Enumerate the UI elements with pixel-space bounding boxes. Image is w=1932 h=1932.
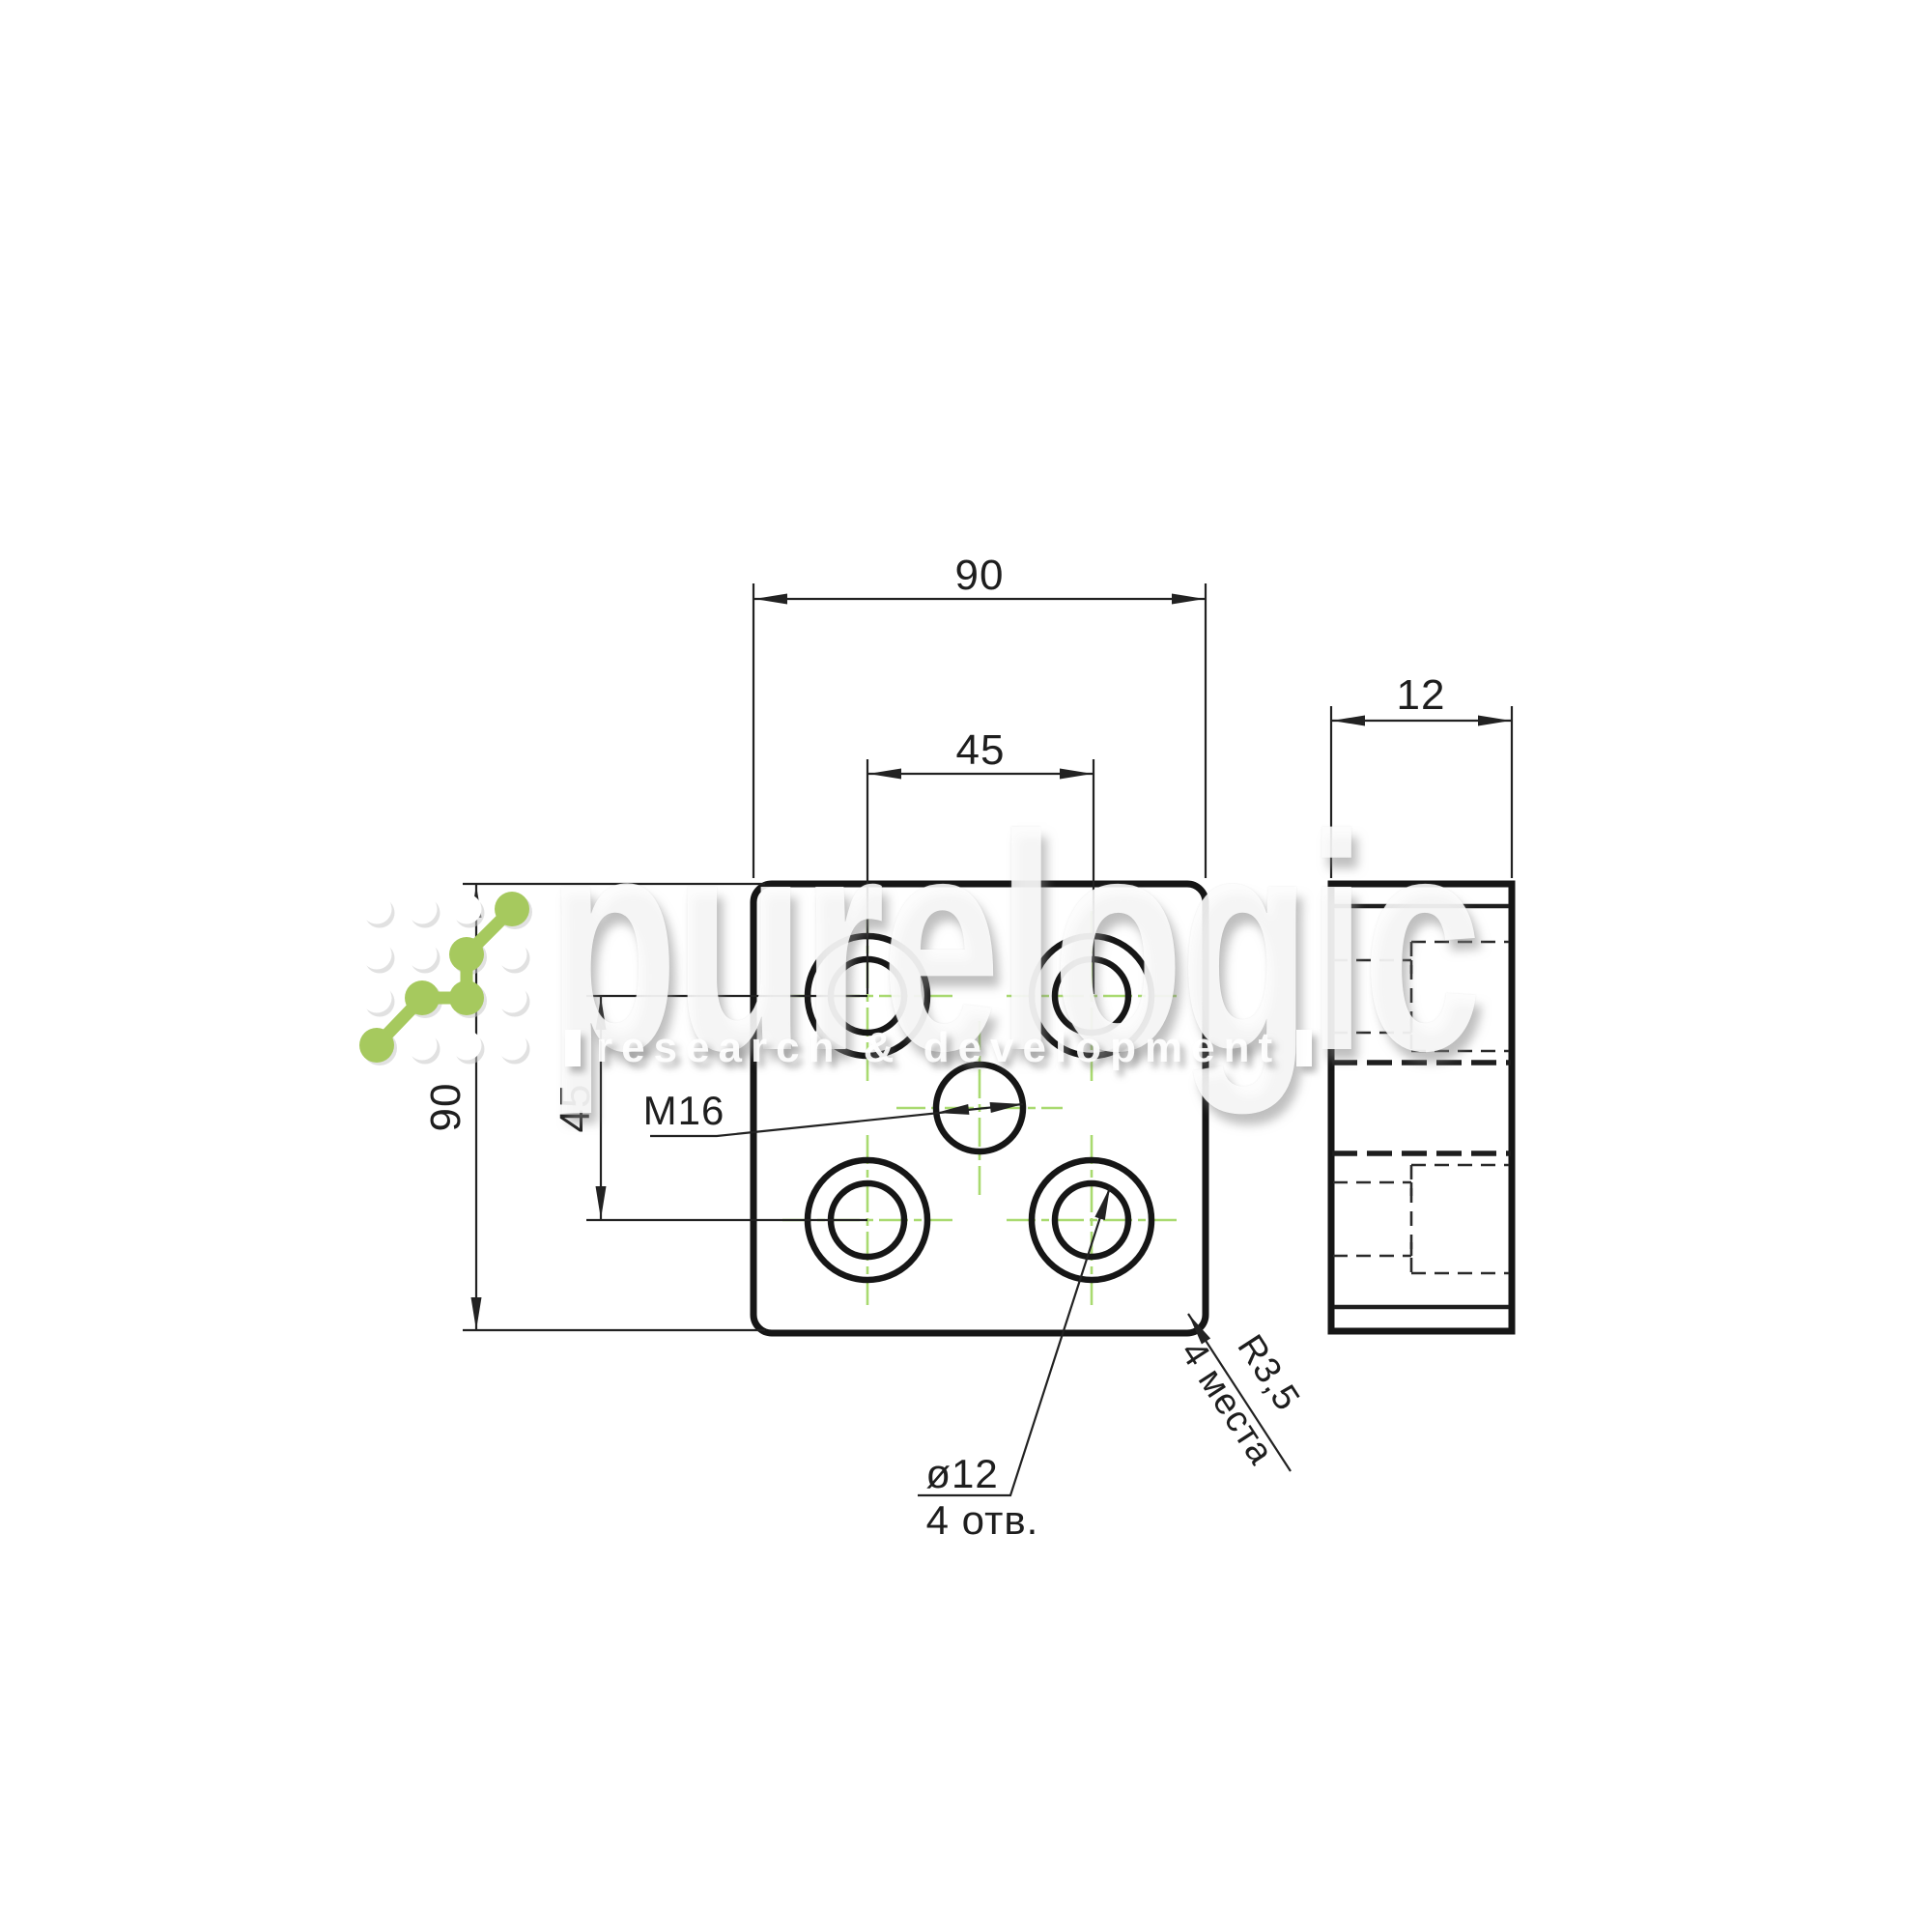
arrow-up-icon [471, 885, 482, 918]
arrow-right-icon [1478, 716, 1511, 726]
dim-width-value: 90 [955, 552, 1005, 599]
dim-height-value: 90 [422, 1083, 469, 1132]
label-holes-diameter: ø12 [925, 1451, 998, 1496]
dim-hole-spacing-h-value: 45 [956, 726, 1006, 774]
label-center-hole: M16 [643, 1088, 725, 1133]
arrow-right-icon [1060, 769, 1093, 780]
side-view: 12 [1331, 671, 1512, 1331]
dim-hole-spacing-v-value: 45 [552, 1084, 599, 1133]
arrow-up-icon [596, 997, 607, 1030]
dim-thickness-12 [1331, 706, 1512, 878]
front-view: 90 45 90 [422, 552, 1308, 1543]
arrow-right-icon [1172, 594, 1205, 605]
technical-drawing-canvas: 90 45 90 [0, 0, 1932, 1932]
drawing-page: 90 45 90 [0, 0, 1932, 1932]
arrow-left-icon [868, 769, 901, 780]
arrow-left-icon [1332, 716, 1365, 726]
side-view-outline [1331, 884, 1512, 1331]
arrow-left-icon [754, 594, 787, 605]
arrow-down-icon [471, 1297, 482, 1330]
arrow-down-icon [596, 1186, 607, 1219]
label-holes-count: 4 отв. [926, 1497, 1039, 1543]
dim-thickness-value: 12 [1397, 671, 1446, 719]
leader-corner-radius: R3,5 4 места [1172, 1314, 1307, 1472]
